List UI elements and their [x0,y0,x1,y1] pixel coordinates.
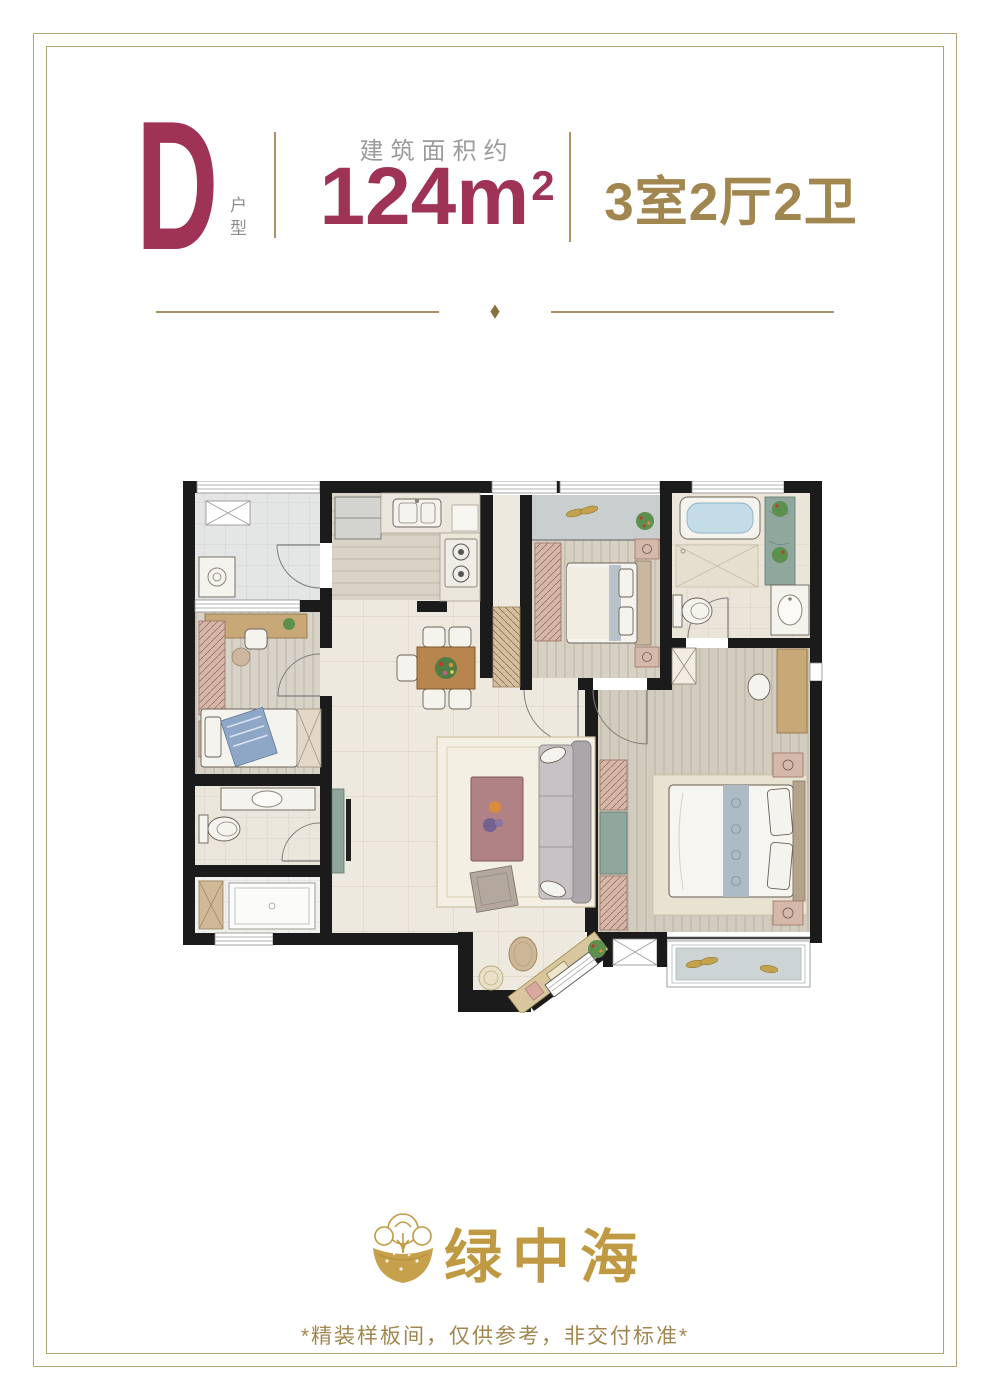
floor-plan [183,481,823,1013]
bathtub [680,497,760,539]
diamond-icon: ◆ [483,299,507,322]
page: D 户型 建筑面积约 124m2 3室2厅2卫 ◆ [0,0,990,1400]
header-divider-2 [569,132,571,242]
disclaimer-text: *精装样板间，仅供参考，非交付标准* [0,1320,990,1350]
toilet-bathroom2 [199,815,240,843]
coffee-table [471,777,523,861]
shower-area [676,545,758,587]
hall-cabinet [493,607,520,687]
window-symbol [206,501,250,525]
divider-line-right [551,311,834,313]
rooms-config-text: 3室2厅2卫 [585,160,877,236]
plant-icon [636,512,654,530]
sofa [538,741,591,903]
living-room [437,737,595,912]
sink-master [771,585,809,635]
wardrobe [535,543,561,641]
bed-bedroom3 [201,707,297,767]
washing-machine [199,557,235,597]
shower-tray [229,883,315,929]
storage-cabinet [199,881,223,929]
marble-counter [765,497,795,585]
master-bed [653,775,807,915]
closet-cabinet [297,709,321,767]
area-number: 124m [319,151,529,242]
unit-letter: D [136,114,218,258]
kitchen-sink [393,499,441,527]
unit-type-label: 户型 [224,196,249,242]
tv [346,799,351,861]
sink-bathroom2 [221,788,315,810]
shaft-cabinet [672,648,696,684]
master-balcony [667,941,810,987]
divider-line-left [156,311,439,313]
area-value: 124m2 [302,156,572,238]
header-divider-1 [274,132,276,238]
brand-name: 绿中海 [444,1210,648,1294]
bed-bedroom2 [567,561,651,645]
area-superscript: 2 [531,162,554,209]
room-bedroom2-balcony [532,495,660,540]
side-table [470,866,518,913]
fridge [335,497,381,539]
master-wardrobe [600,760,627,930]
stove [445,539,477,587]
tv-wall [332,789,351,873]
brand-logo-icon [366,1202,440,1290]
